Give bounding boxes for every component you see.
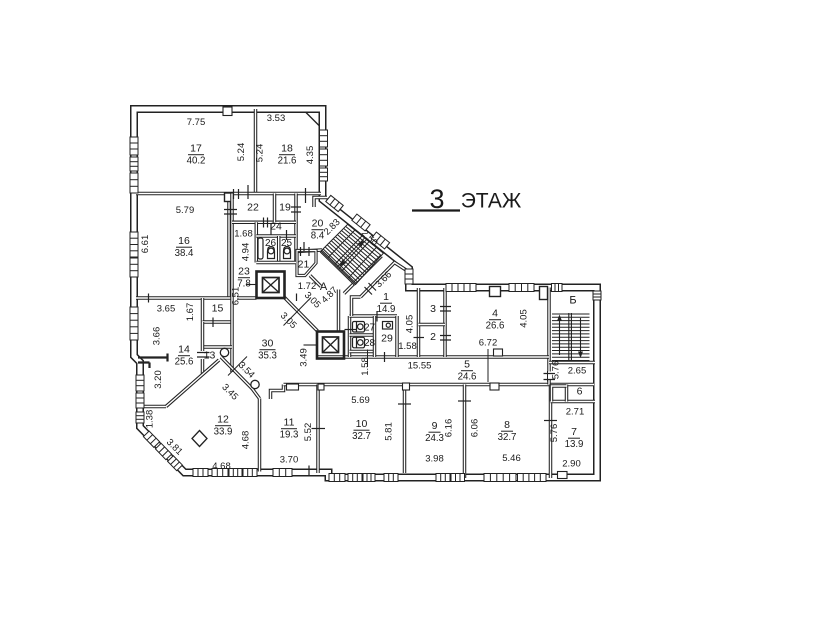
svg-text:33.9: 33.9: [214, 426, 233, 437]
svg-text:5: 5: [464, 359, 470, 371]
svg-text:5.79: 5.79: [176, 205, 195, 216]
svg-text:32.7: 32.7: [498, 432, 517, 443]
svg-text:4: 4: [492, 308, 498, 320]
svg-text:5.69: 5.69: [351, 395, 370, 406]
svg-text:5.46: 5.46: [502, 453, 521, 464]
svg-text:6.06: 6.06: [470, 419, 481, 438]
svg-text:14.9: 14.9: [377, 304, 396, 315]
svg-text:4.94: 4.94: [241, 243, 252, 262]
svg-text:15.55: 15.55: [408, 361, 432, 372]
svg-text:19: 19: [279, 202, 291, 214]
svg-text:3: 3: [430, 303, 436, 315]
svg-text:16: 16: [178, 235, 190, 247]
svg-text:1.58: 1.58: [360, 357, 371, 376]
svg-text:3.20: 3.20: [153, 370, 164, 389]
svg-text:6.51: 6.51: [231, 287, 242, 306]
svg-text:28: 28: [364, 338, 376, 349]
svg-text:4.05: 4.05: [405, 315, 416, 334]
svg-text:24: 24: [270, 221, 282, 233]
svg-text:29: 29: [381, 333, 393, 345]
svg-text:5.24: 5.24: [236, 143, 247, 162]
svg-text:2.71: 2.71: [566, 407, 585, 418]
svg-text:6.16: 6.16: [444, 419, 455, 438]
svg-text:6.72: 6.72: [479, 338, 498, 349]
svg-text:38.4: 38.4: [175, 248, 194, 259]
svg-text:1: 1: [383, 291, 389, 303]
svg-text:11: 11: [284, 417, 295, 429]
svg-text:8: 8: [504, 419, 510, 431]
svg-text:А: А: [320, 281, 328, 293]
svg-text:18: 18: [281, 143, 293, 155]
svg-text:5.76: 5.76: [551, 361, 562, 380]
svg-text:7: 7: [571, 426, 577, 438]
svg-text:3.98: 3.98: [425, 454, 444, 465]
svg-text:26.6: 26.6: [486, 320, 505, 331]
svg-text:4.68: 4.68: [241, 431, 252, 450]
svg-text:20: 20: [312, 218, 324, 230]
svg-text:6.61: 6.61: [140, 235, 151, 254]
svg-text:5.52: 5.52: [303, 423, 314, 442]
svg-text:Б: Б: [569, 295, 576, 307]
svg-text:27: 27: [364, 323, 376, 334]
svg-text:1.67: 1.67: [185, 303, 196, 322]
svg-text:25: 25: [281, 238, 293, 249]
svg-text:22: 22: [247, 202, 259, 214]
svg-text:19.3: 19.3: [280, 429, 299, 440]
svg-text:1.68: 1.68: [234, 229, 253, 240]
svg-text:4.68: 4.68: [212, 461, 231, 472]
svg-text:3.49: 3.49: [299, 348, 310, 367]
svg-text:14: 14: [178, 344, 190, 356]
svg-text:4.05: 4.05: [519, 309, 530, 328]
svg-text:25.6: 25.6: [175, 356, 194, 367]
svg-text:40.2: 40.2: [187, 155, 206, 166]
svg-text:12: 12: [217, 414, 229, 426]
svg-text:5.81: 5.81: [384, 422, 395, 441]
svg-text:6: 6: [577, 386, 583, 398]
svg-text:ЭТАЖ: ЭТАЖ: [461, 190, 522, 213]
svg-text:1.72: 1.72: [298, 281, 317, 292]
svg-text:15: 15: [212, 303, 224, 315]
svg-text:3.70: 3.70: [280, 455, 299, 466]
svg-text:30: 30: [262, 338, 274, 350]
svg-text:21.6: 21.6: [278, 155, 297, 166]
svg-text:13.9: 13.9: [565, 439, 584, 450]
svg-text:35.3: 35.3: [258, 350, 277, 361]
svg-text:3.53: 3.53: [267, 113, 286, 124]
svg-text:5.24: 5.24: [255, 144, 266, 163]
svg-text:3.65: 3.65: [157, 304, 176, 315]
svg-text:7.75: 7.75: [187, 117, 206, 128]
svg-text:3.66: 3.66: [152, 327, 163, 346]
svg-text:2.90: 2.90: [562, 459, 581, 470]
svg-text:26: 26: [265, 238, 277, 249]
svg-text:9: 9: [432, 420, 438, 432]
svg-text:10: 10: [356, 418, 368, 430]
svg-text:13: 13: [204, 350, 216, 362]
svg-text:24.3: 24.3: [425, 433, 444, 444]
svg-text:32.7: 32.7: [352, 431, 371, 442]
svg-text:4.35: 4.35: [305, 146, 316, 165]
svg-text:1.58: 1.58: [398, 341, 417, 352]
svg-text:2: 2: [430, 331, 436, 343]
svg-text:24.6: 24.6: [458, 371, 477, 382]
svg-text:5.76: 5.76: [549, 424, 560, 443]
svg-text:1.38: 1.38: [145, 410, 156, 429]
svg-text:21: 21: [298, 259, 310, 271]
svg-text:23: 23: [238, 266, 250, 278]
svg-text:2.65: 2.65: [568, 366, 587, 377]
svg-text:17: 17: [190, 143, 202, 155]
